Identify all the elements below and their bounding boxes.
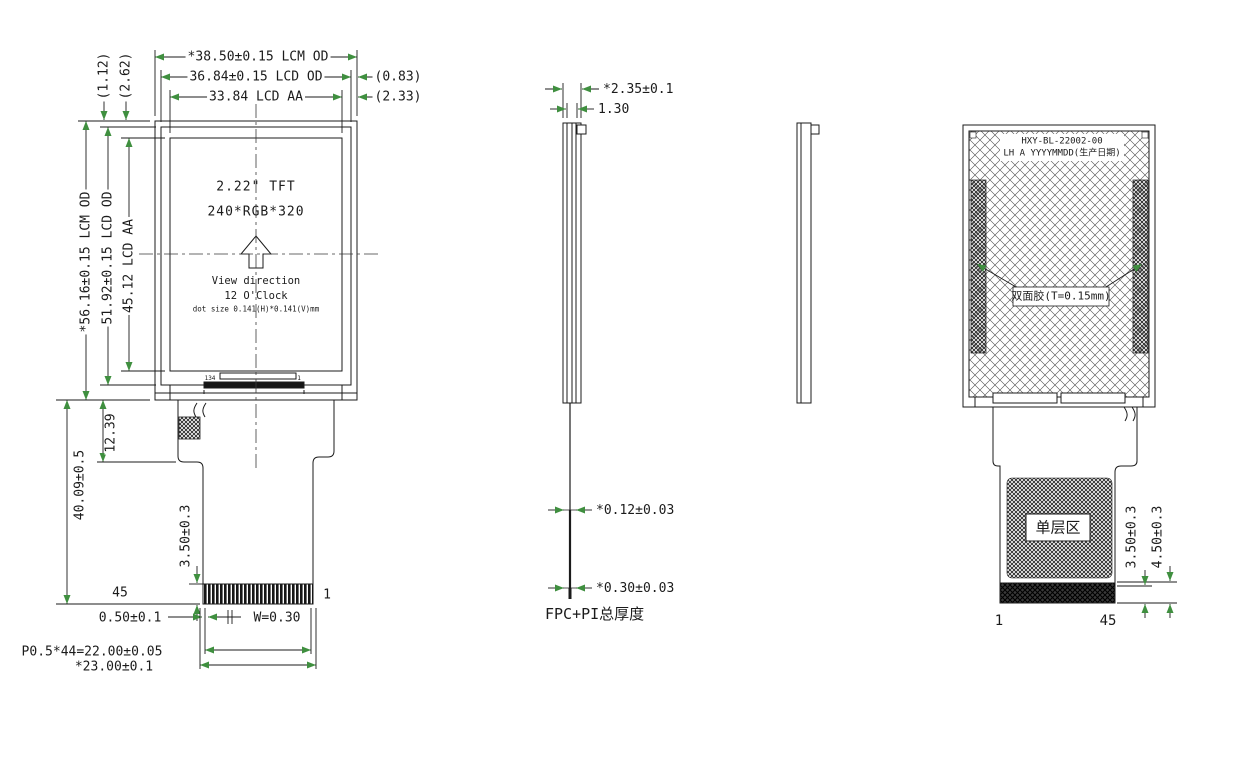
dim-margin-label: 0.50±0.1 — [97, 612, 164, 625]
dim-fpc-width-label: *23.00±0.1 — [73, 661, 155, 674]
dim-lcm-width-label: *38.50±0.15 LCM OD — [186, 51, 331, 64]
dim-strip-label: 3.50±0.3 — [1126, 504, 1139, 571]
screen-size-label: 2.22" TFT — [216, 181, 295, 194]
dim-lcd-margin-h-label: (0.83) — [373, 71, 424, 84]
dim-aa-margin-v-label: (2.62) — [120, 51, 133, 102]
screen-resolution-label: 240*RGB*320 — [207, 206, 304, 219]
fpc-pi-thickness-label: FPC+PI总厚度 — [545, 607, 644, 622]
dim-fpc-thickness2-label: *0.30±0.03 — [596, 582, 674, 595]
pin-45-label-front: 45 — [112, 587, 128, 600]
side-view-2-outline — [797, 123, 819, 403]
dim-panel-thickness-label: 1.30 — [598, 103, 629, 116]
tape-strip-left — [971, 180, 986, 353]
ic-pin-right-label: 1 — [297, 376, 301, 382]
dim-shoulder-label: 12.39 — [105, 411, 118, 454]
dim-strip-total-label: 4.50±0.3 — [1152, 504, 1165, 571]
date-code-label: LH A YYYYMMDD(生产日期) — [1003, 150, 1120, 159]
dim-total-thickness-label: *2.35±0.1 — [603, 83, 673, 96]
dim-fpc-length-label: 40.09±0.5 — [74, 448, 87, 522]
tape-strip-right — [1133, 180, 1148, 353]
dim-finger-length-label: 3.50±0.3 — [180, 503, 193, 570]
back-view-dimensions — [1117, 566, 1177, 618]
back-connector-strip — [1000, 583, 1115, 603]
dim-fpc-thickness1-label: *0.12±0.03 — [596, 504, 674, 517]
single-layer-label: 单层区 — [1035, 521, 1080, 536]
dot-size-label: dot size 0.141(H)*0.141(V)mm — [193, 305, 319, 313]
dim-finger-width-label: W=0.30 — [252, 612, 303, 625]
front-view-dimensions — [56, 50, 375, 669]
dim-lcm-height-label: *56.16±0.15 LCM OD — [80, 190, 93, 335]
ic-pin-left-label: 134 — [205, 376, 216, 382]
tape-label: 双面胶(T=0.15mm) — [1011, 291, 1110, 302]
dim-aa-margin-h-label: (2.33) — [373, 91, 424, 104]
drawing-canvas: *38.50±0.15 LCM OD 36.84±0.15 LCD OD (0.… — [0, 0, 1251, 766]
view-direction-line2: 12 O'Clock — [224, 291, 287, 302]
view-direction-line1: View direction — [212, 276, 301, 287]
pin-1-label-front: 1 — [323, 589, 331, 602]
dim-pitch-label: P0.5*44=22.00±0.05 — [20, 646, 165, 659]
side-view-outline — [563, 123, 586, 599]
dim-aa-width-label: 33.84 LCD AA — [207, 91, 305, 104]
pin-1-label-back: 1 — [995, 614, 1003, 628]
part-number-label: HXY-BL-22002-00 — [1021, 138, 1102, 147]
front-view-centerlines — [139, 104, 379, 472]
pin-45-label-back: 45 — [1100, 614, 1117, 628]
dim-lcd-height-label: 51.92±0.15 LCD OD — [102, 189, 115, 326]
dim-lcd-width-label: 36.84±0.15 LCD OD — [187, 71, 324, 84]
dim-lcd-margin-v-label: (1.12) — [98, 51, 111, 102]
dim-aa-height-label: 45.12 LCD AA — [123, 217, 136, 315]
